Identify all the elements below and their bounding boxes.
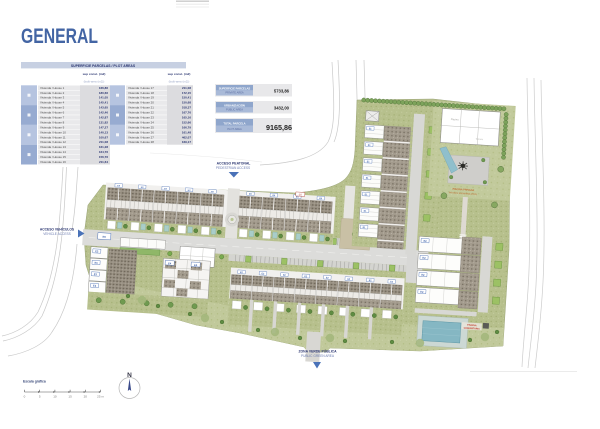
svg-text:100,67: 100,67 — [99, 135, 109, 139]
svg-text:25 m: 25 m — [97, 395, 104, 399]
svg-text:Vivienda / House 14: Vivienda / House 14 — [40, 150, 66, 154]
svg-text:Vivienda / House 6: Vivienda / House 6 — [40, 111, 65, 115]
svg-text:PISCINA: PISCINA — [467, 324, 477, 328]
svg-text:Vivienda / House 17: Vivienda / House 17 — [128, 86, 154, 90]
svg-text:142,87: 142,87 — [99, 116, 109, 120]
svg-text:Vivienda / House 18: Vivienda / House 18 — [128, 91, 154, 95]
svg-text:9165,86: 9165,86 — [266, 123, 292, 132]
svg-text:PRIVATE AREA: PRIVATE AREA — [225, 91, 244, 95]
svg-text:180,66: 180,66 — [99, 91, 109, 95]
svg-text:165,16: 165,16 — [182, 116, 192, 120]
svg-text:ZONA VERDE PÚBLICA: ZONA VERDE PÚBLICA — [298, 348, 337, 353]
svg-text:161,48: 161,48 — [182, 130, 192, 134]
svg-text:Vivienda / House 16: Vivienda / House 16 — [40, 160, 66, 164]
svg-text:Vivienda / House 23: Vivienda / House 23 — [128, 116, 154, 120]
svg-text:Vivienda / House 21: Vivienda / House 21 — [128, 106, 154, 110]
svg-text:156,76: 156,76 — [99, 155, 109, 159]
svg-text:PEDESTRIAN ACCESS: PEDESTRIAN ACCESS — [216, 166, 250, 170]
svg-text:150,68: 150,68 — [182, 101, 192, 105]
svg-text:145,41: 145,41 — [99, 101, 109, 105]
svg-text:SUPERFICIE PARCELAS / PLOT ARE: SUPERFICIE PARCELAS / PLOT AREAS — [71, 64, 136, 68]
svg-text:Vivienda / House 11: Vivienda / House 11 — [40, 135, 66, 139]
svg-text:152,66: 152,66 — [182, 120, 192, 124]
svg-text:Vivienda / House 28: Vivienda / House 28 — [128, 140, 154, 144]
svg-text:131,82: 131,82 — [99, 120, 109, 124]
svg-text:TOTAL PARCELA: TOTAL PARCELA — [223, 122, 245, 126]
svg-text:Vivienda / House 13: Vivienda / House 13 — [40, 145, 66, 149]
svg-text:20: 20 — [84, 395, 88, 399]
svg-text:3432,00: 3432,00 — [274, 106, 290, 111]
svg-text:Vivienda / House 15: Vivienda / House 15 — [40, 155, 66, 159]
svg-text:Piscina: Piscina — [451, 118, 460, 122]
svg-text:(built-area (m2)): (built-area (m2)) — [84, 80, 105, 84]
svg-text:147,27: 147,27 — [99, 125, 109, 129]
svg-text:Vivienda / House 9: Vivienda / House 9 — [40, 125, 65, 129]
svg-text:Vivienda / House 8: Vivienda / House 8 — [40, 120, 65, 124]
svg-text:5733,86: 5733,86 — [274, 89, 290, 94]
svg-text:Vivienda / House 1: Vivienda / House 1 — [40, 86, 65, 90]
svg-text:Vivienda / House 26: Vivienda / House 26 — [128, 130, 154, 134]
svg-text:Vivienda / House 5: Vivienda / House 5 — [40, 106, 65, 110]
svg-text:PUBLIC AREA: PUBLIC AREA — [226, 108, 243, 112]
svg-text:142,46: 142,46 — [99, 111, 109, 115]
svg-text:Vivienda / House 2: Vivienda / House 2 — [40, 91, 65, 95]
svg-text:166,79: 166,79 — [182, 125, 192, 129]
svg-text:518,37: 518,37 — [182, 106, 192, 110]
svg-text:Vivienda / House 22: Vivienda / House 22 — [128, 111, 154, 115]
svg-text:sup const. (m2): sup const. (m2) — [83, 72, 106, 76]
svg-text:161,28: 161,28 — [99, 145, 109, 149]
svg-text:VEHICLE ACCESS: VEHICLE ACCESS — [43, 232, 70, 236]
svg-text:166,86: 166,86 — [99, 86, 109, 90]
svg-text:Vivienda / House 25: Vivienda / House 25 — [128, 125, 154, 129]
svg-text:141,05: 141,05 — [99, 96, 109, 100]
svg-text:Escala gráfica: Escala gráfica — [23, 380, 46, 384]
svg-text:sup const. (m2): sup const. (m2) — [168, 72, 191, 76]
svg-text:Terraza: Terraza — [475, 138, 483, 142]
svg-text:Vivienda / House 19: Vivienda / House 19 — [128, 96, 154, 100]
svg-text:Vivienda / House 27: Vivienda / House 27 — [128, 135, 154, 139]
svg-text:Vivienda / House 12: Vivienda / House 12 — [40, 140, 66, 144]
svg-text:SUPERFICIE PARCELAS: SUPERFICIE PARCELAS — [219, 87, 251, 91]
svg-text:172,15: 172,15 — [182, 91, 192, 95]
svg-text:ACCESO VEHÍCULOS: ACCESO VEHÍCULOS — [40, 227, 75, 232]
svg-text:164,76: 164,76 — [99, 150, 109, 154]
svg-text:PLOT AREA: PLOT AREA — [227, 127, 242, 131]
svg-text:PUBLIC GREEN AREA: PUBLIC GREEN AREA — [301, 354, 335, 358]
svg-text:211,64: 211,64 — [99, 160, 108, 164]
svg-text:150,41: 150,41 — [182, 96, 192, 100]
svg-text:Vivienda / House 20: Vivienda / House 20 — [128, 101, 154, 105]
svg-text:167,76: 167,76 — [182, 111, 192, 115]
svg-text:Vivienda / House 4: Vivienda / House 4 — [40, 101, 65, 105]
svg-text:Vivienda / House 3: Vivienda / House 3 — [40, 96, 65, 100]
svg-text:GENERAL: GENERAL — [21, 24, 98, 48]
svg-text:211,08: 211,08 — [99, 140, 108, 144]
svg-text:143,65: 143,65 — [99, 106, 109, 110]
svg-text:ACCESO PEATONAL: ACCESO PEATONAL — [217, 162, 251, 166]
svg-text:Vivienda / House 7: Vivienda / House 7 — [40, 116, 65, 120]
svg-text:15: 15 — [68, 395, 72, 399]
svg-text:Vivienda / House 24: Vivienda / House 24 — [128, 120, 154, 124]
svg-text:140,13: 140,13 — [99, 130, 109, 134]
svg-text:169,17: 169,17 — [182, 140, 192, 144]
svg-text:Vivienda / House 10: Vivienda / House 10 — [40, 130, 66, 134]
svg-text:211,08: 211,08 — [182, 86, 191, 90]
svg-text:462,07: 462,07 — [182, 135, 192, 139]
svg-text:10: 10 — [53, 395, 57, 399]
svg-text:(built-area (m2)): (built-area (m2)) — [169, 80, 190, 84]
